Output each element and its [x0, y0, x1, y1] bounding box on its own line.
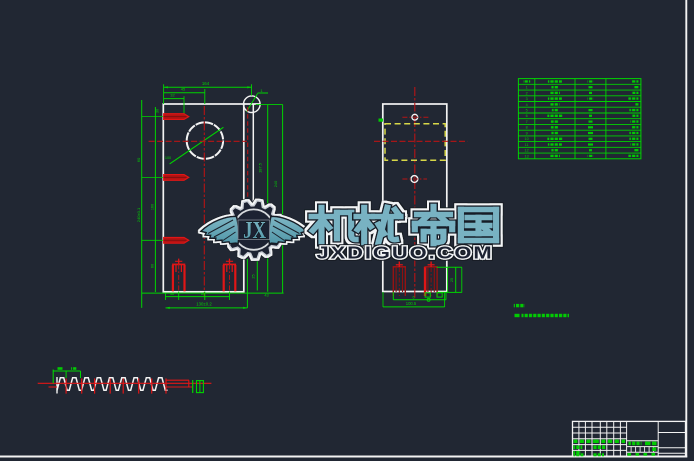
svg-text:JXDIGUO.COM: JXDIGUO.COM	[317, 243, 494, 263]
svg-text:10: 10	[525, 137, 529, 141]
svg-text:45: 45	[181, 87, 186, 92]
svg-text:60: 60	[151, 264, 155, 268]
svg-text:130±0.2: 130±0.2	[196, 302, 212, 307]
svg-text:5: 5	[526, 109, 528, 113]
svg-text:JX: JX	[243, 217, 266, 244]
svg-text:60: 60	[136, 157, 141, 162]
svg-text:8: 8	[526, 126, 528, 130]
svg-text:11: 11	[525, 143, 529, 147]
svg-text:32: 32	[170, 92, 175, 97]
svg-text:187.5: 187.5	[258, 163, 263, 173]
svg-text:2: 2	[526, 91, 528, 95]
svg-text:9: 9	[526, 131, 528, 135]
svg-text:160: 160	[151, 204, 155, 210]
svg-text:30: 30	[156, 109, 160, 113]
svg-text:100.5: 100.5	[406, 301, 417, 306]
svg-text:6: 6	[526, 114, 528, 118]
svg-text:1: 1	[526, 86, 528, 90]
svg-text:25: 25	[450, 278, 454, 282]
svg-text:12: 12	[525, 149, 529, 153]
svg-text:25: 25	[252, 274, 256, 278]
svg-text:240: 240	[273, 180, 278, 187]
svg-text:100: 100	[165, 156, 171, 160]
svg-text:36: 36	[170, 291, 174, 296]
svg-text:6: 6	[412, 295, 414, 299]
svg-text:43: 43	[264, 293, 268, 298]
svg-text:7: 7	[526, 120, 528, 124]
svg-text:240±0.1: 240±0.1	[136, 207, 141, 222]
svg-text:13: 13	[525, 154, 529, 158]
svg-text:4: 4	[526, 103, 528, 107]
svg-text:3: 3	[526, 97, 528, 101]
svg-text:164: 164	[202, 81, 210, 86]
